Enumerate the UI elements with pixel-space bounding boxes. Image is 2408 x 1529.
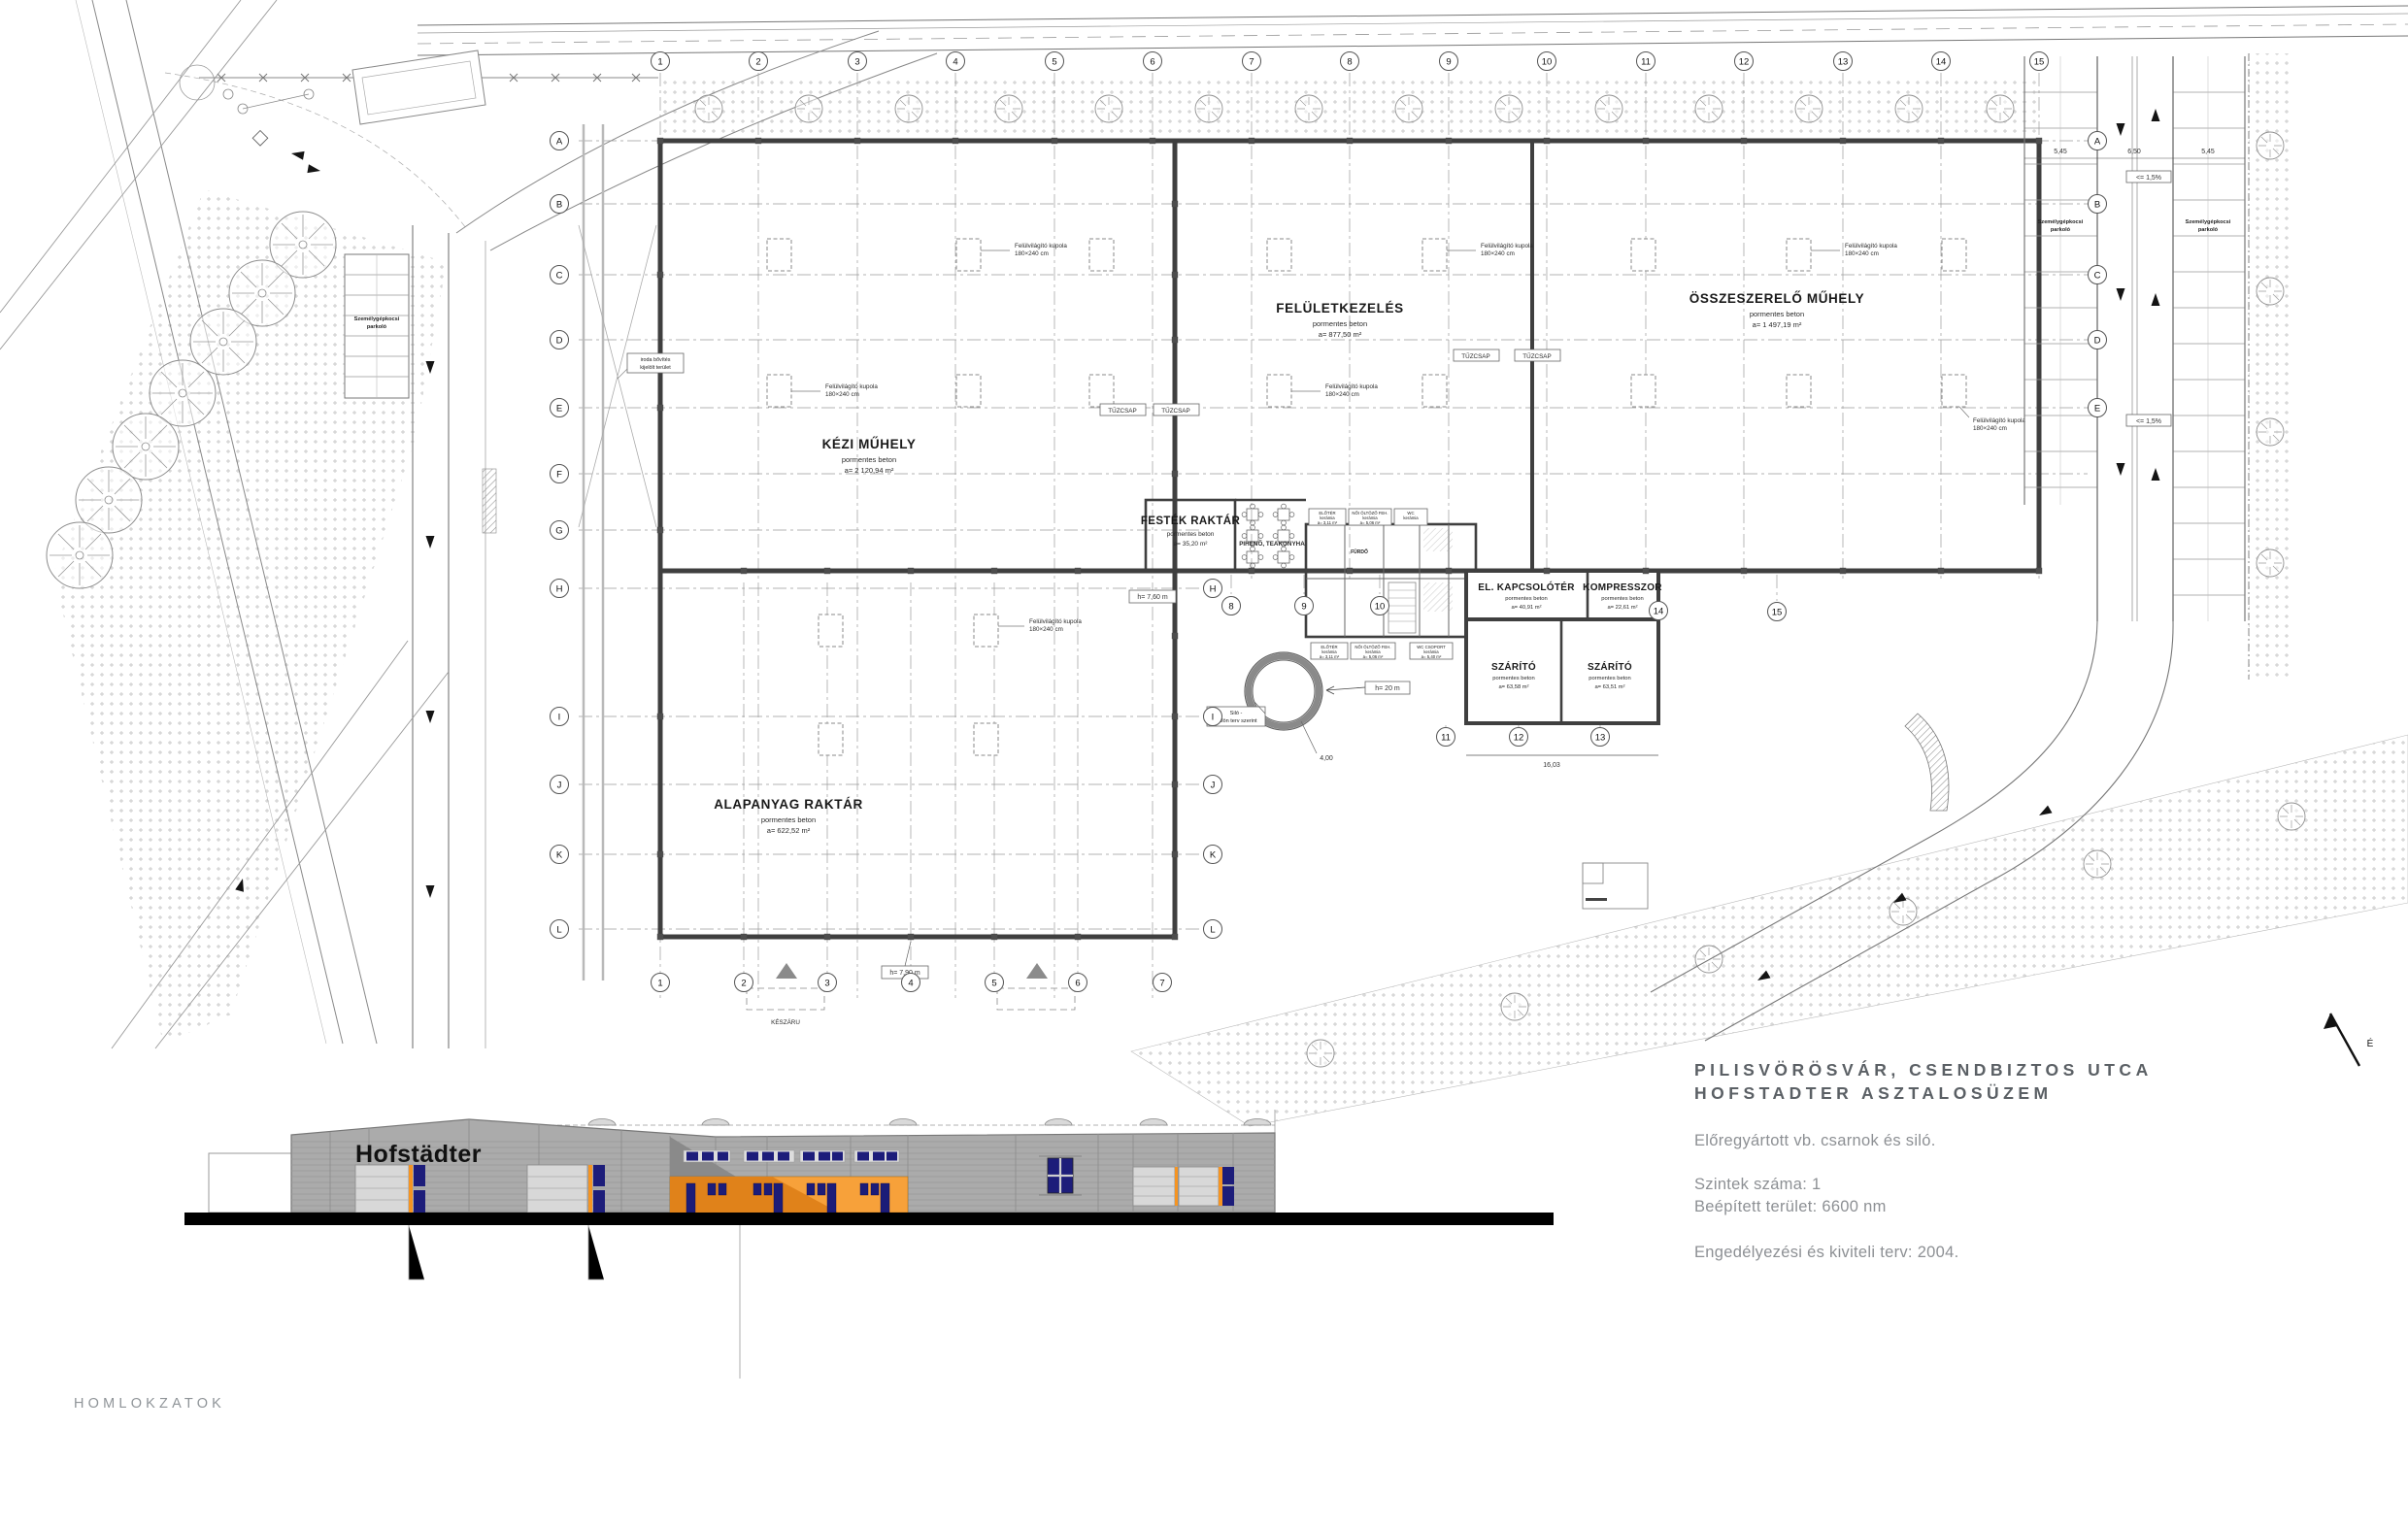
project-levels: Szintek száma: 1 [1694, 1176, 2153, 1194]
skylight-label: Felülvilágító kupola [825, 383, 878, 390]
grid-number: 4 [908, 978, 913, 988]
grid-number: 10 [1375, 601, 1386, 612]
vegetation-areas [53, 53, 2408, 1126]
grid-letter: I [1212, 712, 1215, 722]
parking-east-label-1b: parkoló [2051, 227, 2071, 233]
project-title-line1: PILISVÖRÖSVÁR, CSENDBIZTOS UTCA [1694, 1058, 2153, 1081]
silo-label-1: Siló - [1230, 711, 1243, 716]
sanitary-wccs-area: a= 5,40 m² [1421, 654, 1442, 659]
parking-east-label-2b: parkoló [2198, 227, 2219, 233]
grid-number: 13 [1595, 732, 1606, 743]
room-festek: FESTÉK RAKTÁR [1141, 515, 1241, 527]
grid-letter: A [556, 136, 563, 147]
grid-number: 5 [1052, 56, 1056, 67]
skylight-label: 180×240 cm [825, 391, 859, 398]
grid-number: 14 [1654, 606, 1664, 616]
sanitary-bottom-row: ELŐTÉR kerámia a= 3,11 m² NŐI ÖLTÖZŐ FEH… [1311, 643, 1453, 659]
grid-number: 4 [953, 56, 957, 67]
ground-bar [184, 1213, 1554, 1225]
drawing-sheet: Személygépkocsi parkoló [0, 0, 2408, 1529]
room-material: pormentes beton [1167, 531, 1215, 538]
skylight-label: Felülvilágító kupola [1325, 383, 1378, 390]
grid-letter: J [1211, 780, 1216, 790]
room-festek-area: a= 35,20 m² [1174, 541, 1209, 548]
grid-letter: E [2094, 403, 2100, 414]
expansion-label-2: kijelölt terület [640, 365, 671, 371]
grid-number: 8 [1228, 601, 1233, 612]
room-feluletkezeles: FELÜLETKEZELÉS [1276, 301, 1403, 316]
ramp-1 [776, 963, 797, 979]
sanitary-eloter-area: a= 3,11 m² [1318, 520, 1338, 525]
skylights: Felülvilágító kupola 180×240 cm Felülvil… [767, 239, 2025, 755]
grid-number: 1 [657, 978, 662, 988]
slope-label-1: <= 1,5% [2136, 175, 2161, 182]
sanitary-eloter-area: a= 3,11 m² [1320, 654, 1340, 659]
ramp-2 [1026, 963, 1048, 979]
room-material: pormentes beton [1313, 319, 1367, 328]
sanitary-block [1306, 524, 1476, 637]
grid-number: 3 [824, 978, 829, 988]
sanitary-furdo: FÜRDŐ [1351, 548, 1368, 555]
room-alapanyag: ALAPANYAG RAKTÁR [714, 797, 863, 812]
skylight-label: 180×240 cm [1015, 250, 1049, 257]
skylight-label: 180×240 cm [1481, 250, 1515, 257]
fire-hydrant-label: TŰZCSAP [1108, 406, 1136, 415]
top-road [418, 6, 2408, 55]
room-szarito1-area: a= 63,58 m² [1498, 684, 1528, 690]
north-arrow: É [2324, 1014, 2374, 1066]
grid-letter: E [556, 403, 562, 414]
room-material: pormentes beton [1750, 310, 1804, 318]
parking-west-label-2: parkoló [367, 324, 387, 330]
room-material: pormentes beton [1492, 676, 1535, 681]
grid-letter: C [556, 270, 563, 281]
room-material: pormentes beton [1505, 596, 1548, 602]
room-kezi-muhely: KÉZI MŰHELY [822, 437, 917, 451]
grid-number: 12 [1739, 56, 1750, 67]
room-kompresszor: KOMPRESSZOR [1583, 582, 1662, 593]
project-description: Előregyártott vb. csarnok és siló. [1694, 1132, 2153, 1150]
grid-number: 12 [1514, 732, 1524, 743]
logo-text: Hofstädter [355, 1141, 482, 1168]
sanitary-oltozo-area: a= 5,06 m² [1360, 520, 1381, 525]
room-elkapcsoloter: EL. KAPCSOLÓTÉR [1478, 581, 1575, 593]
north-label: É [2367, 1037, 2374, 1049]
grid-number: 13 [1838, 56, 1849, 67]
grid-number: 14 [1936, 56, 1947, 67]
skylight-label: Felülvilágító kupola [1845, 243, 1897, 249]
skylight-label: 180×240 cm [1029, 626, 1063, 633]
grid-letter: F [556, 469, 562, 480]
grid-number: 7 [1159, 978, 1164, 988]
legend-box [1583, 863, 1648, 909]
room-elkapcs-area: a= 40,91 m² [1511, 605, 1541, 611]
grid-letter: B [556, 199, 562, 210]
silo-diameter-label: 4,00 [1320, 755, 1333, 762]
expansion-label-1: iroda bővítés [641, 357, 671, 363]
skylight-label: 180×240 cm [1325, 391, 1359, 398]
grid-number: 2 [741, 978, 746, 988]
skylight-label: Felülvilágító kupola [1015, 243, 1067, 249]
room-piheno: PIHENŐ, TEAKONYHA [1239, 539, 1305, 548]
teakonyha-tables [1242, 504, 1294, 568]
skylight-label: Felülvilágító kupola [1481, 243, 1533, 249]
room-material: pormentes beton [1601, 596, 1644, 602]
window-band [684, 1150, 899, 1162]
skylight-label: Felülvilágító kupola [1029, 618, 1082, 625]
silo: Siló - Külön terv szerint h= 20 m 4,00 [1207, 652, 1410, 762]
grid-number: 9 [1301, 601, 1306, 612]
grid-number: 11 [1441, 732, 1451, 743]
grid-number: 1 [657, 56, 662, 67]
grid-letter: L [556, 924, 561, 935]
grid-lines [579, 73, 2088, 998]
room-szarito-1: SZÁRÍTÓ [1491, 660, 1536, 673]
fire-hydrant-label: TŰZCSAP [1522, 351, 1551, 360]
grid-letter: I [558, 712, 561, 722]
silo-height-label: h= 20 m [1375, 685, 1400, 692]
elevation-drawing: Hofstädter [184, 1110, 1554, 1379]
grid-letter: C [2094, 270, 2101, 281]
sanitary-top-row: ELŐTÉR kerámia a= 3,11 m² NŐI ÖLTÖZŐ FEH… [1309, 509, 1427, 525]
grid-number: 5 [991, 978, 996, 988]
grid-letter: B [2094, 199, 2100, 210]
site-plan-svg: Személygépkocsi parkoló [0, 0, 2408, 1529]
room-szarito-2: SZÁRÍTÓ [1588, 660, 1632, 673]
grid-letter: D [556, 335, 563, 346]
parking-west: Személygépkocsi parkoló [345, 254, 409, 398]
grid-letter: H [556, 583, 563, 594]
sheet-section-label: HOMLOKZATOK [74, 1396, 225, 1412]
grid-letter: J [557, 780, 562, 790]
traffic-island-hatch [1905, 714, 1949, 811]
room-ossze-area: a= 1 497,19 m² [1753, 320, 1802, 329]
sanitary-material: kerámia [1403, 515, 1419, 520]
sanitary-oltozo-area: a= 5,06 m² [1363, 654, 1384, 659]
slope-label-2: <= 1,5% [2136, 418, 2161, 425]
grid-number: 8 [1347, 56, 1352, 67]
room-felulet-area: a= 877,50 m² [1319, 330, 1362, 339]
road-sign-diamond [252, 131, 268, 147]
elevation-leaders [409, 1225, 740, 1379]
parking-west-label-1: Személygépkocsi [354, 316, 400, 322]
dim-545-r: 5,45 [2201, 149, 2215, 155]
project-built-area: Beépített terület: 6600 nm [1694, 1198, 2153, 1216]
dim-650: 6,50 [2127, 149, 2141, 155]
keszaru-label: KÉSZÁRU [771, 1017, 800, 1026]
dim-545-l: 5,45 [2054, 149, 2067, 155]
crosswalk-hatch [483, 469, 496, 533]
stair [1388, 582, 1416, 633]
grid-letter: H [1210, 583, 1217, 594]
fire-hydrant-label: TŰZCSAP [1461, 351, 1489, 360]
room-alapanyag-area: a= 622,52 m² [767, 826, 811, 835]
dim-16-03: 16,03 [1543, 762, 1560, 769]
grid-number: 3 [854, 56, 859, 67]
grid-number: 6 [1150, 56, 1154, 67]
room-szarito2-area: a= 63,51 m² [1594, 684, 1624, 690]
roof-domes [588, 1119, 1271, 1126]
room-material: pormentes beton [1589, 676, 1631, 681]
grid-number: 2 [755, 56, 760, 67]
room-osszeszerelo: ÖSSZESZERELŐ MŰHELY [1689, 291, 1864, 306]
grid-number: 15 [1772, 607, 1783, 617]
parking-east-label-1: Személygépkocsi [2038, 219, 2084, 225]
room-kezi-area: a= 2 120,94 m² [845, 466, 894, 475]
room-material: pormentes beton [842, 455, 896, 464]
expansion-area-brace [579, 225, 656, 527]
grid-number: 10 [1542, 56, 1553, 67]
grid-letter: A [2094, 136, 2101, 147]
grid-letter: D [2094, 335, 2101, 346]
skylight-label: Felülvilágító kupola [1973, 417, 2025, 424]
grid-letter: K [1210, 849, 1217, 860]
project-title-line2: HOFSTADTER ASZTALOSÜZEM [1694, 1081, 2153, 1105]
project-permit: Engedélyezési és kiviteli terv: 2004. [1694, 1244, 2153, 1262]
grid-number: 6 [1075, 978, 1080, 988]
grid-letter: L [1210, 924, 1215, 935]
skylight-label: 180×240 cm [1973, 425, 2007, 432]
fire-hydrant-label: TŰZCSAP [1161, 406, 1189, 415]
grid-number: 9 [1446, 56, 1451, 67]
room-material: pormentes beton [761, 815, 816, 824]
parking-east-label-2: Személygépkocsi [2186, 219, 2231, 225]
elevation-annex [209, 1153, 291, 1213]
grid-letter: K [556, 849, 563, 860]
skylight-label: 180×240 cm [1845, 250, 1879, 257]
existing-building [352, 50, 485, 124]
clear-height-label-1: h= 7,60 m [1137, 594, 1167, 601]
grid-number: 11 [1641, 56, 1651, 67]
title-block: PILISVÖRÖSVÁR, CSENDBIZTOS UTCA HOFSTADT… [1694, 1058, 2153, 1262]
room-kompresszor-area: a= 22,61 m² [1607, 605, 1637, 611]
grid-number: 7 [1249, 56, 1254, 67]
grid-number: 15 [2034, 56, 2045, 67]
grid-letter: G [555, 525, 562, 536]
